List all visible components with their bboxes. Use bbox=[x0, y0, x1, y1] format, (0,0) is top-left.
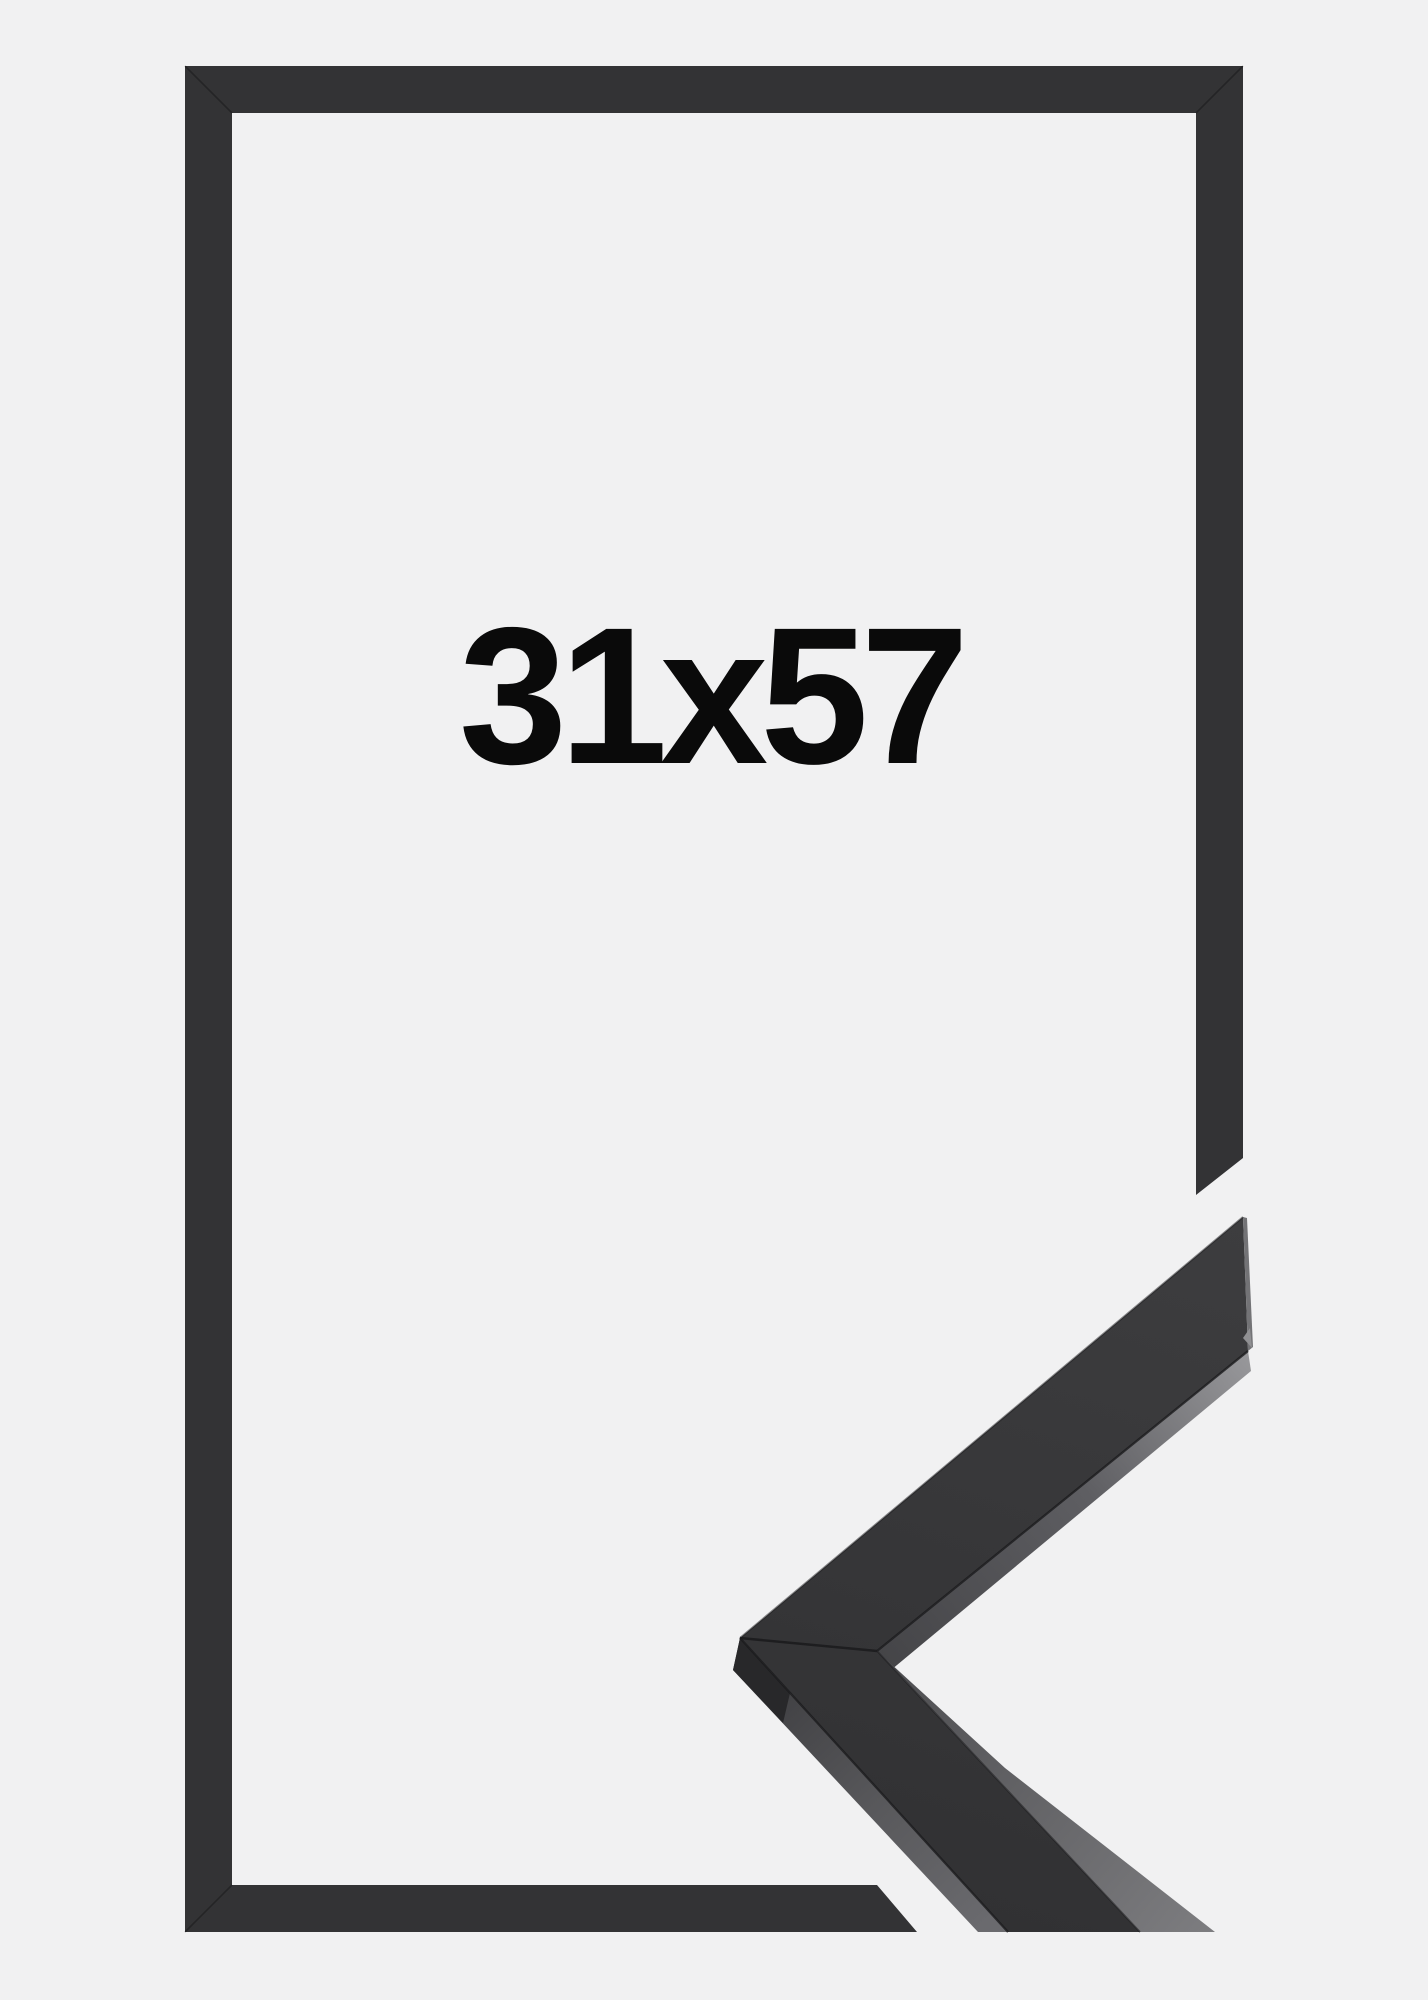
product-image: 31x57 bbox=[0, 0, 1428, 2000]
frame-photo-graphic bbox=[0, 0, 1428, 2000]
